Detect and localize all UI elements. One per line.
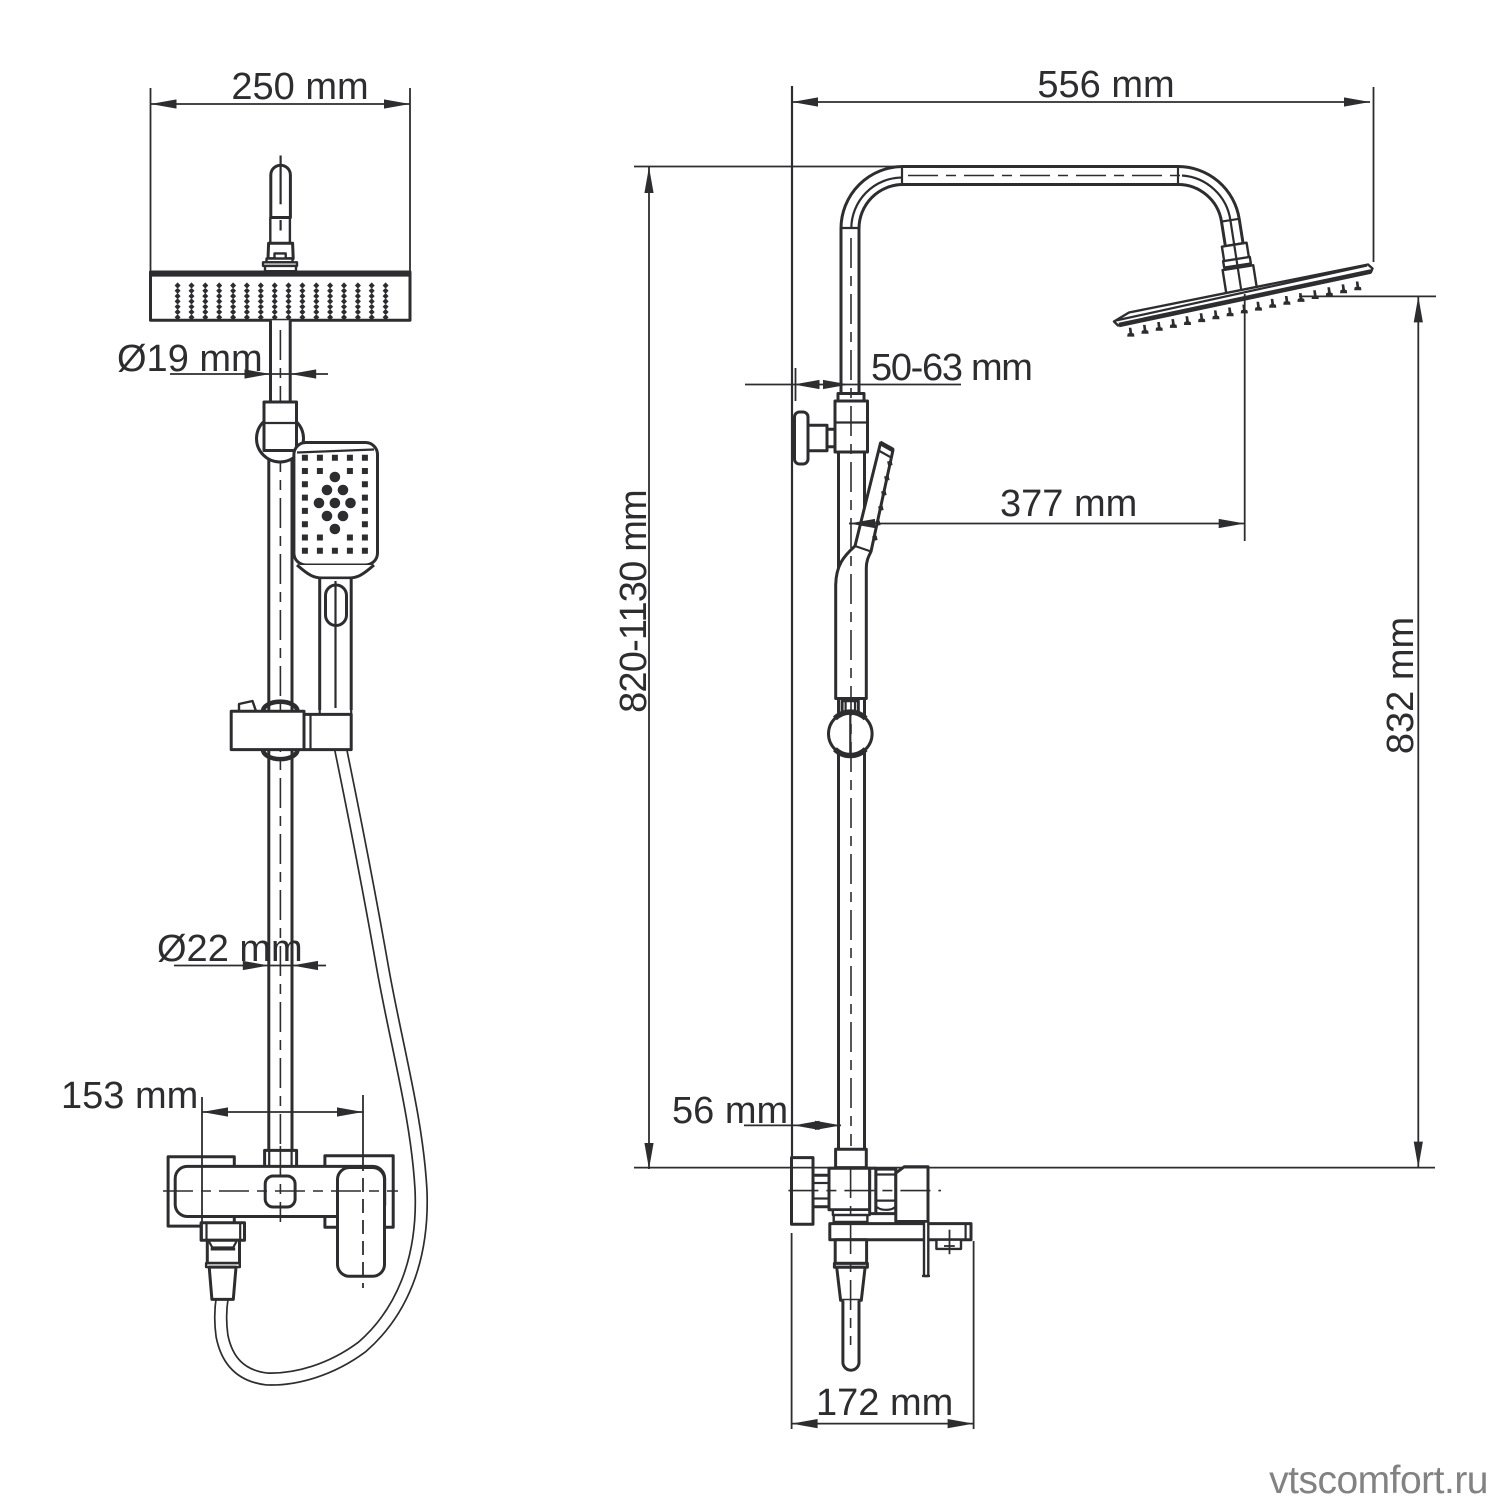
svg-text:832 mm: 832 mm	[1380, 617, 1422, 754]
svg-text:Ø22 mm: Ø22 mm	[157, 928, 303, 970]
svg-text:vtscomfort.ru: vtscomfort.ru	[1269, 1459, 1488, 1500]
svg-text:250 mm: 250 mm	[231, 66, 368, 108]
svg-text:153 mm: 153 mm	[61, 1075, 198, 1117]
svg-text:820-1130 mm: 820-1130 mm	[613, 490, 655, 713]
svg-text:56 mm: 56 mm	[672, 1090, 788, 1132]
svg-text:50-63 mm: 50-63 mm	[871, 347, 1032, 389]
svg-text:556 mm: 556 mm	[1037, 64, 1174, 106]
svg-text:Ø19 mm: Ø19 mm	[117, 338, 263, 380]
svg-text:377 mm: 377 mm	[1000, 483, 1137, 525]
svg-text:172 mm: 172 mm	[816, 1382, 953, 1424]
